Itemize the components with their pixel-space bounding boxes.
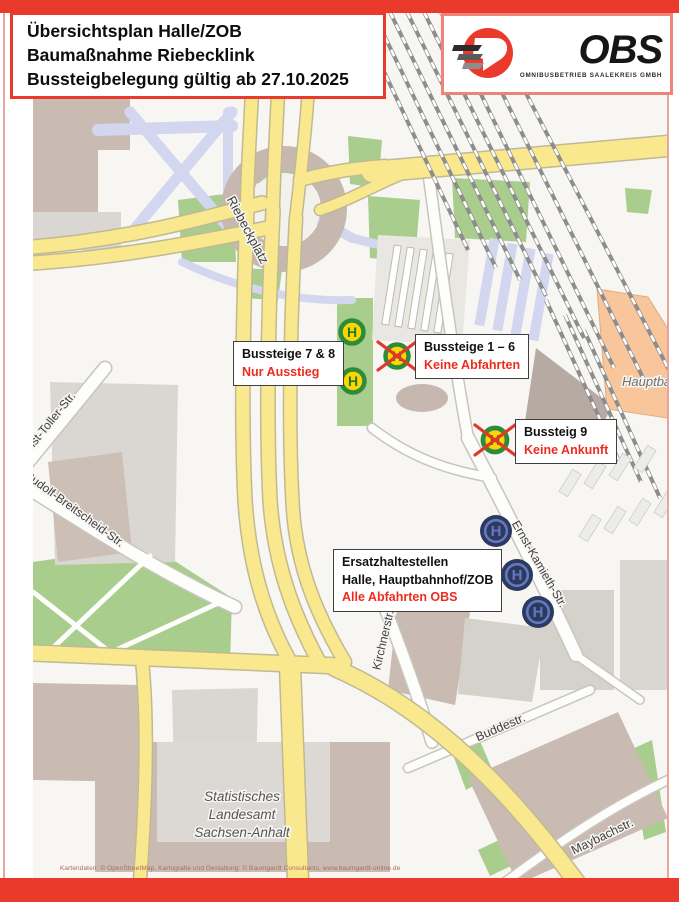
replacement-stop-icon-3: H	[516, 590, 560, 634]
left-border-line	[3, 13, 5, 878]
bottom-red-bar	[0, 878, 679, 902]
title-line-2: Baumaßnahme Riebecklink	[27, 43, 373, 67]
obs-logo-text: OBS	[578, 30, 662, 70]
obs-logo-icon	[452, 23, 514, 85]
callout-platforms-1-6: Bussteige 1 – 6 Keine Abfahrten	[415, 334, 529, 379]
poi-label-landesamt-2: Landesamt	[209, 807, 277, 822]
callout-title: Bussteige 7 & 8	[242, 346, 335, 364]
callout-note: Alle Abfahrten OBS	[342, 589, 493, 607]
obs-logo-box: OBS OMNIBUSBETRIEB SAALEKREIS GMBH	[441, 13, 673, 95]
title-line-3: Bussteigbelegung gültig ab 27.10.2025	[27, 67, 373, 91]
callout-replacement-stops: Ersatzhaltestellen Halle, Hauptbahnhof/Z…	[333, 549, 502, 612]
replacement-stop-letter: H	[491, 523, 502, 540]
title-box: Übersichtsplan Halle/ZOB Baumaßnahme Rie…	[10, 12, 386, 99]
callout-note: Keine Abfahrten	[424, 357, 520, 375]
callout-note: Keine Ankunft	[524, 442, 608, 460]
title-line-1: Übersichtsplan Halle/ZOB	[27, 19, 373, 43]
replacement-stop-letter: H	[512, 567, 523, 584]
replacement-stop-icon-1: H	[474, 509, 518, 553]
uebersichtsplan-page: Riebeckplatz Ernst-Toller-Str. Rudolf-Br…	[0, 0, 679, 902]
callout-subtitle: Halle, Hauptbahnhof/ZOB	[342, 572, 493, 590]
poi-label-landesamt-1: Statistisches	[204, 789, 280, 804]
poi-label-landesamt-3: Sachsen-Anhalt	[194, 825, 291, 840]
callout-title: Ersatzhaltestellen	[342, 554, 493, 572]
replacement-stop-letter: H	[533, 604, 544, 621]
bus-stop-crossed-icon-platform-9: H	[471, 416, 519, 464]
callout-title: Bussteige 1 – 6	[424, 339, 520, 357]
callout-platform-9: Bussteig 9 Keine Ankunft	[515, 419, 617, 464]
bus-stop-crossed-icon-platforms-1-6: H	[373, 332, 421, 380]
callout-title: Bussteig 9	[524, 424, 608, 442]
poi-label-hauptbahnhof: Hauptbahnhof	[622, 374, 679, 389]
bus-stop-letter: H	[347, 324, 357, 340]
map-attribution: Kartendaten: © OpenStreetMap, Kartografi…	[60, 865, 400, 872]
obs-logo-subtitle: OMNIBUSBETRIEB SAALEKREIS GMBH	[520, 72, 662, 79]
callout-platforms-7-8: Bussteige 7 & 8 Nur Ausstieg	[233, 341, 344, 386]
right-border-line	[667, 13, 669, 878]
bus-stop-letter: H	[348, 373, 358, 389]
callout-note: Nur Ausstieg	[242, 364, 335, 382]
